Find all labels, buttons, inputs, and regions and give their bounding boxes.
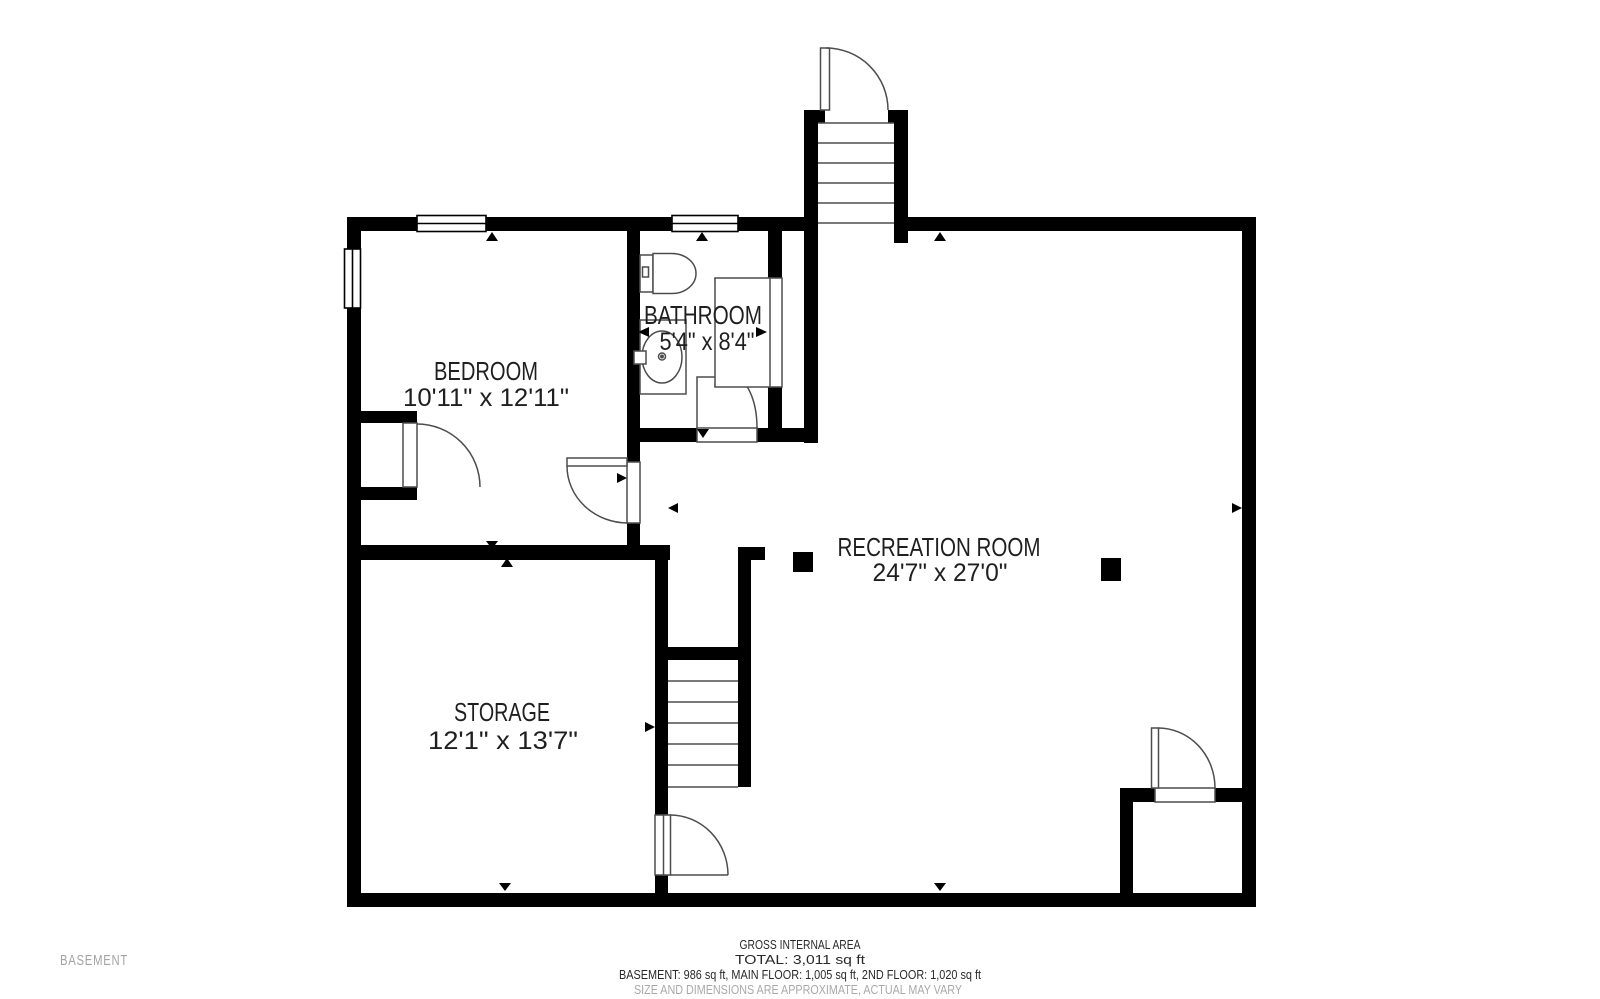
staircase-upper — [818, 123, 894, 223]
footer-total: TOTAL: 3,011 sq ft — [735, 952, 865, 967]
footer-title: GROSS INTERNAL AREA — [740, 937, 861, 952]
door-bedroom — [567, 458, 640, 523]
recreation-room-name: RECREATION ROOM — [838, 532, 1041, 562]
floor-plan-page: BEDROOM 10'11" x 12'11" BATHROOM 5'4" x … — [0, 0, 1600, 999]
bathroom-dims: 5'4" x 8'4" — [660, 328, 755, 356]
window-bedroom-top — [417, 216, 486, 232]
bedroom-name: BEDROOM — [434, 356, 538, 386]
bedroom-dims: 10'11" x 12'11" — [403, 384, 569, 412]
floor-label: BASEMENT — [60, 952, 128, 969]
footer-disclaimer: SIZE AND DIMENSIONS ARE APPROXIMATE, ACT… — [634, 982, 962, 997]
floor-plan-canvas: BEDROOM 10'11" x 12'11" BATHROOM 5'4" x … — [0, 0, 1600, 999]
window-bedroom-left — [345, 249, 361, 308]
door-bedroom-closet — [403, 423, 480, 487]
staircase-lower — [668, 681, 738, 787]
recreation-room-dims: 24'7" x 27'0" — [873, 559, 1008, 587]
footer-breakdown: BASEMENT: 986 sq ft, MAIN FLOOR: 1,005 s… — [619, 967, 981, 982]
door-entry-closet — [1152, 728, 1216, 802]
storage-dims: 12'1" x 13'7" — [428, 727, 578, 755]
window-bathroom-top — [672, 216, 738, 232]
bathroom-name: BATHROOM — [644, 300, 762, 330]
door-top-entry — [821, 48, 889, 110]
support-post — [1101, 558, 1121, 581]
door-storage — [655, 815, 728, 875]
toilet-icon — [640, 254, 696, 294]
support-post — [793, 552, 813, 572]
storage-name: STORAGE — [454, 697, 550, 727]
footer: GROSS INTERNAL AREA TOTAL: 3,011 sq ft B… — [619, 937, 981, 997]
